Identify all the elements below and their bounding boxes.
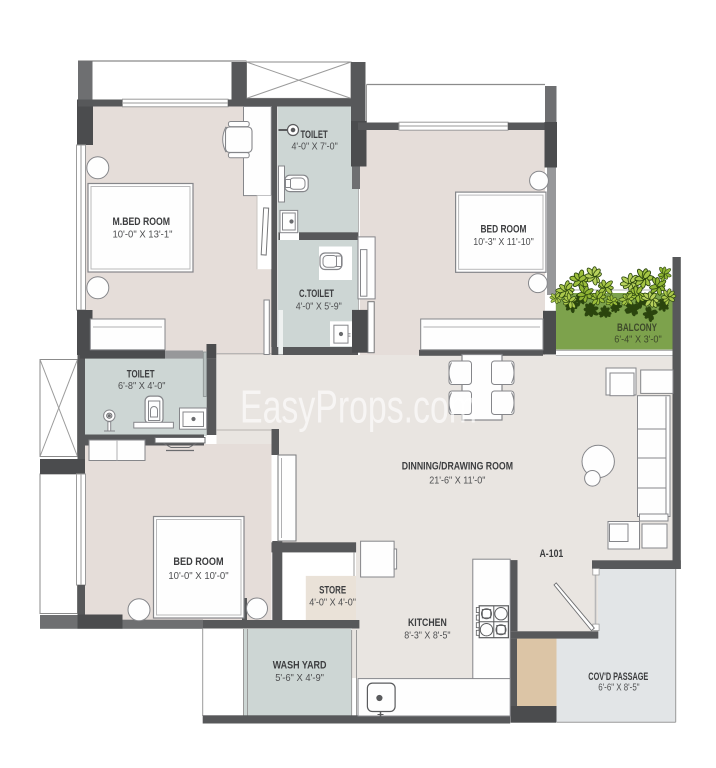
- svg-text:6'-8" X 4'-0": 6'-8" X 4'-0": [118, 381, 166, 392]
- svg-text:A-101: A-101: [540, 548, 564, 560]
- svg-text:6'-6" X 8'-5": 6'-6" X 8'-5": [598, 682, 640, 693]
- svg-text:TOILET: TOILET: [300, 129, 327, 141]
- svg-text:DINNING/DRAWING ROOM: DINNING/DRAWING ROOM: [402, 461, 513, 473]
- svg-text:STORE: STORE: [319, 585, 346, 597]
- svg-text:M.BED ROOM: M.BED ROOM: [113, 216, 171, 228]
- svg-text:5'-6" X 4'-9": 5'-6" X 4'-9": [275, 673, 324, 684]
- svg-text:C.TOILET: C.TOILET: [299, 288, 334, 300]
- svg-text:10'-0" X 13'-1": 10'-0" X 13'-1": [113, 229, 173, 240]
- svg-text:BED ROOM: BED ROOM: [173, 556, 223, 568]
- svg-text:BED ROOM: BED ROOM: [481, 224, 527, 236]
- svg-text:10'-3" X 11'-10": 10'-3" X 11'-10": [473, 237, 534, 248]
- svg-text:21'-6" X 11'-0": 21'-6" X 11'-0": [429, 475, 485, 486]
- svg-text:10'-0" X 10'-0": 10'-0" X 10'-0": [168, 571, 229, 582]
- svg-text:4'-0" X 7'-0": 4'-0" X 7'-0": [291, 141, 338, 152]
- svg-text:WASH YARD: WASH YARD: [273, 660, 327, 672]
- svg-text:BALCONY: BALCONY: [617, 322, 657, 334]
- svg-text:6'-4" X 3'-0": 6'-4" X 3'-0": [614, 334, 662, 345]
- svg-text:4'-0" X 5'-9": 4'-0" X 5'-9": [296, 301, 342, 312]
- svg-text:KITCHEN: KITCHEN: [408, 617, 447, 629]
- svg-text:COV'D PASSAGE: COV'D PASSAGE: [588, 671, 648, 683]
- svg-text:TOILET: TOILET: [127, 368, 155, 380]
- svg-text:EasyProps.com: EasyProps.com: [240, 381, 477, 433]
- svg-text:8'-3" X 8'-5": 8'-3" X 8'-5": [404, 630, 451, 641]
- svg-text:4'-0" X 4'-0": 4'-0" X 4'-0": [309, 597, 356, 608]
